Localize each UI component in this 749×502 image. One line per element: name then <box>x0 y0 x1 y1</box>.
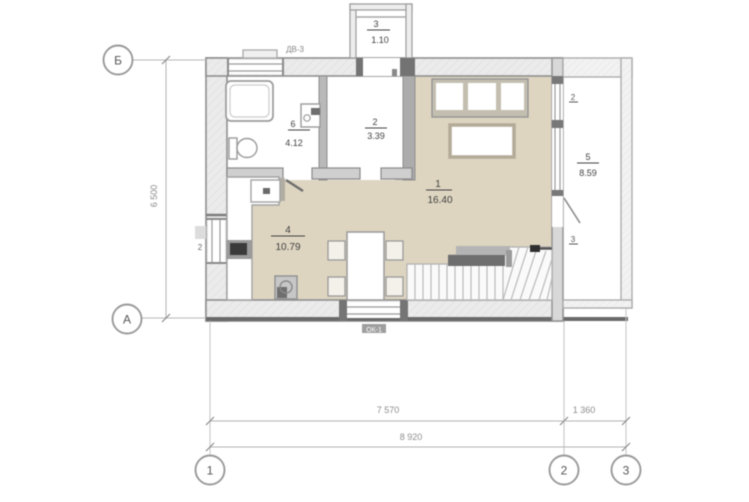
svg-text:3: 3 <box>623 464 630 478</box>
svg-text:1.10: 1.10 <box>371 35 389 45</box>
svg-text:8.59: 8.59 <box>579 168 597 178</box>
svg-text:2: 2 <box>372 117 377 127</box>
svg-text:4.12: 4.12 <box>285 138 303 148</box>
svg-text:3: 3 <box>571 235 576 244</box>
svg-text:3.39: 3.39 <box>367 131 385 141</box>
svg-text:10.79: 10.79 <box>275 242 300 253</box>
svg-text:2: 2 <box>198 243 203 252</box>
svg-text:4: 4 <box>285 225 291 236</box>
svg-text:7 570: 7 570 <box>377 405 400 415</box>
svg-text:5: 5 <box>585 152 590 162</box>
svg-text:ОК-1: ОК-1 <box>366 327 382 334</box>
svg-text:1 360: 1 360 <box>573 405 596 415</box>
svg-text:А: А <box>123 313 131 327</box>
svg-text:1: 1 <box>207 464 214 478</box>
svg-text:16.40: 16.40 <box>427 195 452 206</box>
svg-text:ДВ-3: ДВ-3 <box>286 45 304 54</box>
svg-text:3: 3 <box>373 19 378 29</box>
svg-text:6 500: 6 500 <box>149 185 159 208</box>
svg-text:2: 2 <box>571 93 576 102</box>
svg-text:6: 6 <box>290 119 295 129</box>
svg-text:2: 2 <box>561 464 568 478</box>
svg-text:8 920: 8 920 <box>400 432 423 442</box>
svg-text:1: 1 <box>435 179 441 190</box>
svg-text:Б: Б <box>114 54 122 68</box>
